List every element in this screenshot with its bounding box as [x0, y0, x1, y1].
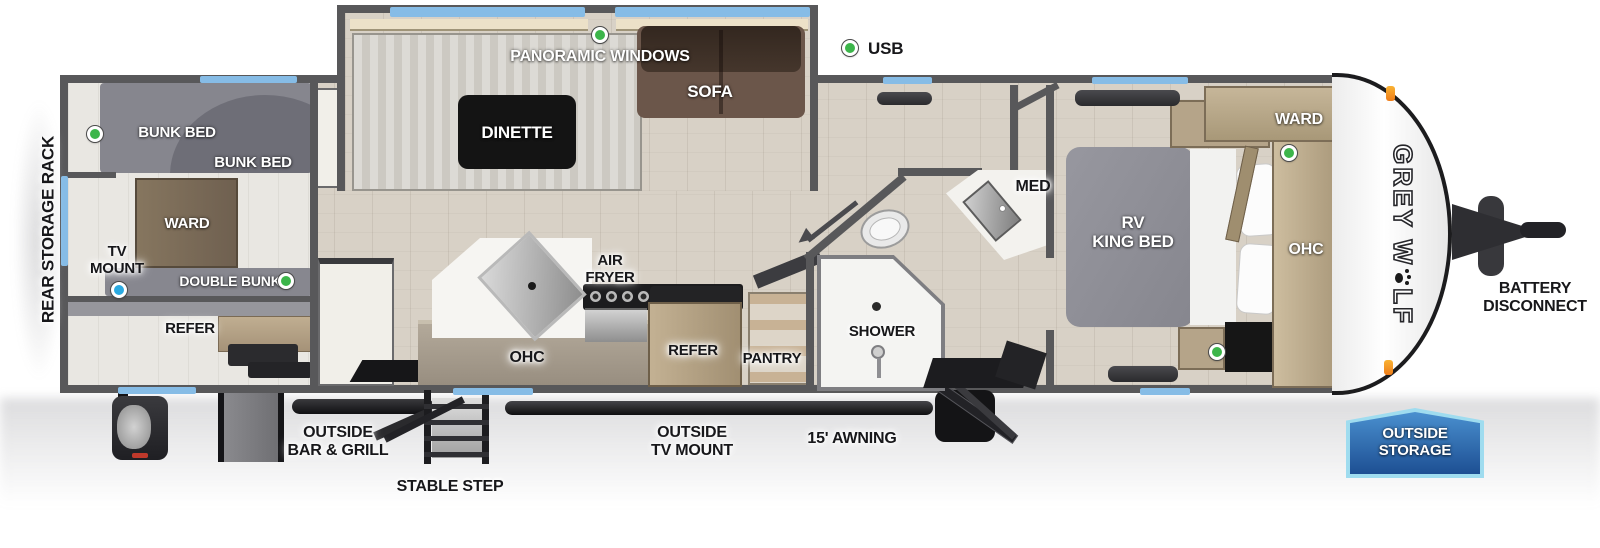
bar-grill-label: OUTSIDE BAR & GRILL	[270, 424, 406, 460]
slideout-window	[390, 7, 585, 17]
kitchen-refer-label: REFER	[653, 343, 733, 360]
rv-king-bed-label-line2: KING BED	[1092, 232, 1174, 251]
bedroom-ward-label: WARD	[1254, 111, 1344, 129]
shower-drain	[872, 302, 881, 311]
shower-label: SHOWER	[836, 324, 928, 341]
step-rung	[424, 420, 489, 425]
shower-wand	[877, 358, 881, 378]
rv-king-bed-label-line1: RV	[1122, 213, 1145, 232]
battery-disconnect-line1: BATTERY	[1499, 280, 1571, 297]
brand-logo: GREY WLF	[1386, 85, 1420, 385]
panoramic-windows-label: PANORAMIC WINDOWS	[480, 48, 720, 66]
rear-wall-stub	[68, 172, 116, 178]
rear-window-strip	[61, 176, 68, 266]
rear-storage-rack-label: REAR STORAGE RACK	[38, 120, 57, 340]
bunk-bed-bottom-label: BUNK BED	[193, 155, 313, 172]
sink-drain	[528, 282, 536, 290]
bath-closet-wall	[1010, 85, 1018, 170]
outside-tv-mount-line1: OUTSIDE	[657, 424, 727, 441]
outside-storage-line1: OUTSIDE	[1382, 425, 1447, 442]
rear-refer-label: REFER	[150, 321, 230, 338]
window-strip	[1092, 77, 1188, 84]
tv-mount-indicator-dot	[111, 282, 127, 298]
tv-mount-label-line1: TV	[108, 243, 127, 260]
air-fryer-label: AIR FRYER	[560, 253, 660, 287]
window-strip	[883, 77, 932, 84]
usb-indicator-dot	[1281, 145, 1297, 161]
rear-ward-label: WARD	[137, 216, 237, 233]
window-strip	[118, 387, 196, 394]
bar-grill-label-line1: OUTSIDE	[303, 424, 373, 441]
bedroom-ohc-label: OHC	[1276, 241, 1336, 259]
bath-left-wall	[806, 252, 814, 393]
sofa-seat-split	[719, 30, 723, 114]
range-oven	[585, 308, 647, 342]
pantry-label: PANTRY	[735, 351, 809, 368]
usb-indicator-dot	[1209, 344, 1225, 360]
paw-icon	[1396, 269, 1411, 286]
burner	[606, 291, 617, 302]
bath-top-wall	[898, 168, 982, 176]
bedroom-wall-upper	[1046, 85, 1054, 258]
shower-handle	[871, 345, 885, 359]
bunk-bed-top-label: BUNK BED	[117, 125, 237, 142]
kitchen-ohc-label: OHC	[472, 349, 582, 367]
battery-disconnect-label: BATTERY DISCONNECT	[1455, 280, 1600, 316]
usb-legend-dot	[842, 40, 858, 56]
slideout-window	[615, 7, 810, 17]
usb-indicator-dot	[278, 273, 294, 289]
tv-mount-label: TV MOUNT	[75, 244, 159, 278]
bedroom-wall-lower	[1046, 330, 1054, 390]
awning-label: 15' AWNING	[790, 430, 914, 448]
usb-legend-label: USB	[868, 39, 918, 58]
battery-disconnect-line2: DISCONNECT	[1483, 298, 1587, 315]
usb-indicator-dot	[592, 27, 608, 43]
stable-step-label: STABLE STEP	[390, 478, 510, 496]
ceiling-fixture	[877, 92, 932, 105]
step-rung	[424, 452, 489, 457]
dinette-label: DINETTE	[458, 123, 576, 142]
bedroom-ohc-cabinet	[1272, 140, 1338, 388]
outside-tv-mount-label: OUTSIDE TV MOUNT	[630, 424, 754, 460]
tv-mount-label-line2: MOUNT	[90, 260, 144, 277]
window-strip	[200, 76, 297, 83]
ceiling-fixture	[1108, 366, 1178, 382]
ceiling-fixture	[1075, 90, 1180, 106]
rear-counter-shade	[68, 302, 312, 316]
outside-grill-bar	[292, 399, 434, 414]
sofa	[637, 26, 805, 118]
storage-tote	[112, 396, 168, 460]
window-valance	[350, 19, 588, 31]
outside-tv-mount-line2: TV MOUNT	[651, 442, 733, 459]
burner	[622, 291, 633, 302]
hitch-coupler	[1520, 222, 1566, 238]
entry-door-strip	[453, 388, 533, 395]
rv-king-bed-label: RV KING BED	[1073, 213, 1193, 251]
rear-shelf	[248, 362, 312, 378]
storage-tote-valve	[132, 453, 148, 458]
bar-grill-label-line2: BAR & GRILL	[288, 442, 389, 459]
brand-logo-prefix: GREY W	[1388, 144, 1419, 267]
burner	[638, 291, 649, 302]
window-strip	[1140, 388, 1190, 395]
air-fryer-label-line2: FRYER	[585, 269, 634, 286]
storage-tote-face	[117, 405, 151, 449]
toilet-seat	[866, 214, 903, 245]
air-fryer-label-line1: AIR	[597, 252, 622, 269]
awning-tube	[505, 401, 933, 415]
divider-wall	[310, 83, 318, 385]
pantry-cabinet	[748, 292, 808, 385]
outside-storage-label: OUTSIDE STORAGE	[1350, 426, 1480, 460]
bedroom-black-cabinet	[1225, 322, 1272, 372]
step-rung	[424, 436, 489, 441]
burner	[590, 291, 601, 302]
usb-indicator-dot	[87, 126, 103, 142]
outside-storage-line2: STORAGE	[1379, 442, 1452, 459]
brand-logo-suffix: LF	[1388, 288, 1419, 326]
floorplan-diagram: BUNK BED BUNK BED WARD TV MOUNT DOUBLE B…	[0, 0, 1600, 548]
med-label: MED	[1008, 178, 1058, 196]
med-faucet	[999, 205, 1006, 212]
sofa-label: SOFA	[650, 82, 770, 101]
